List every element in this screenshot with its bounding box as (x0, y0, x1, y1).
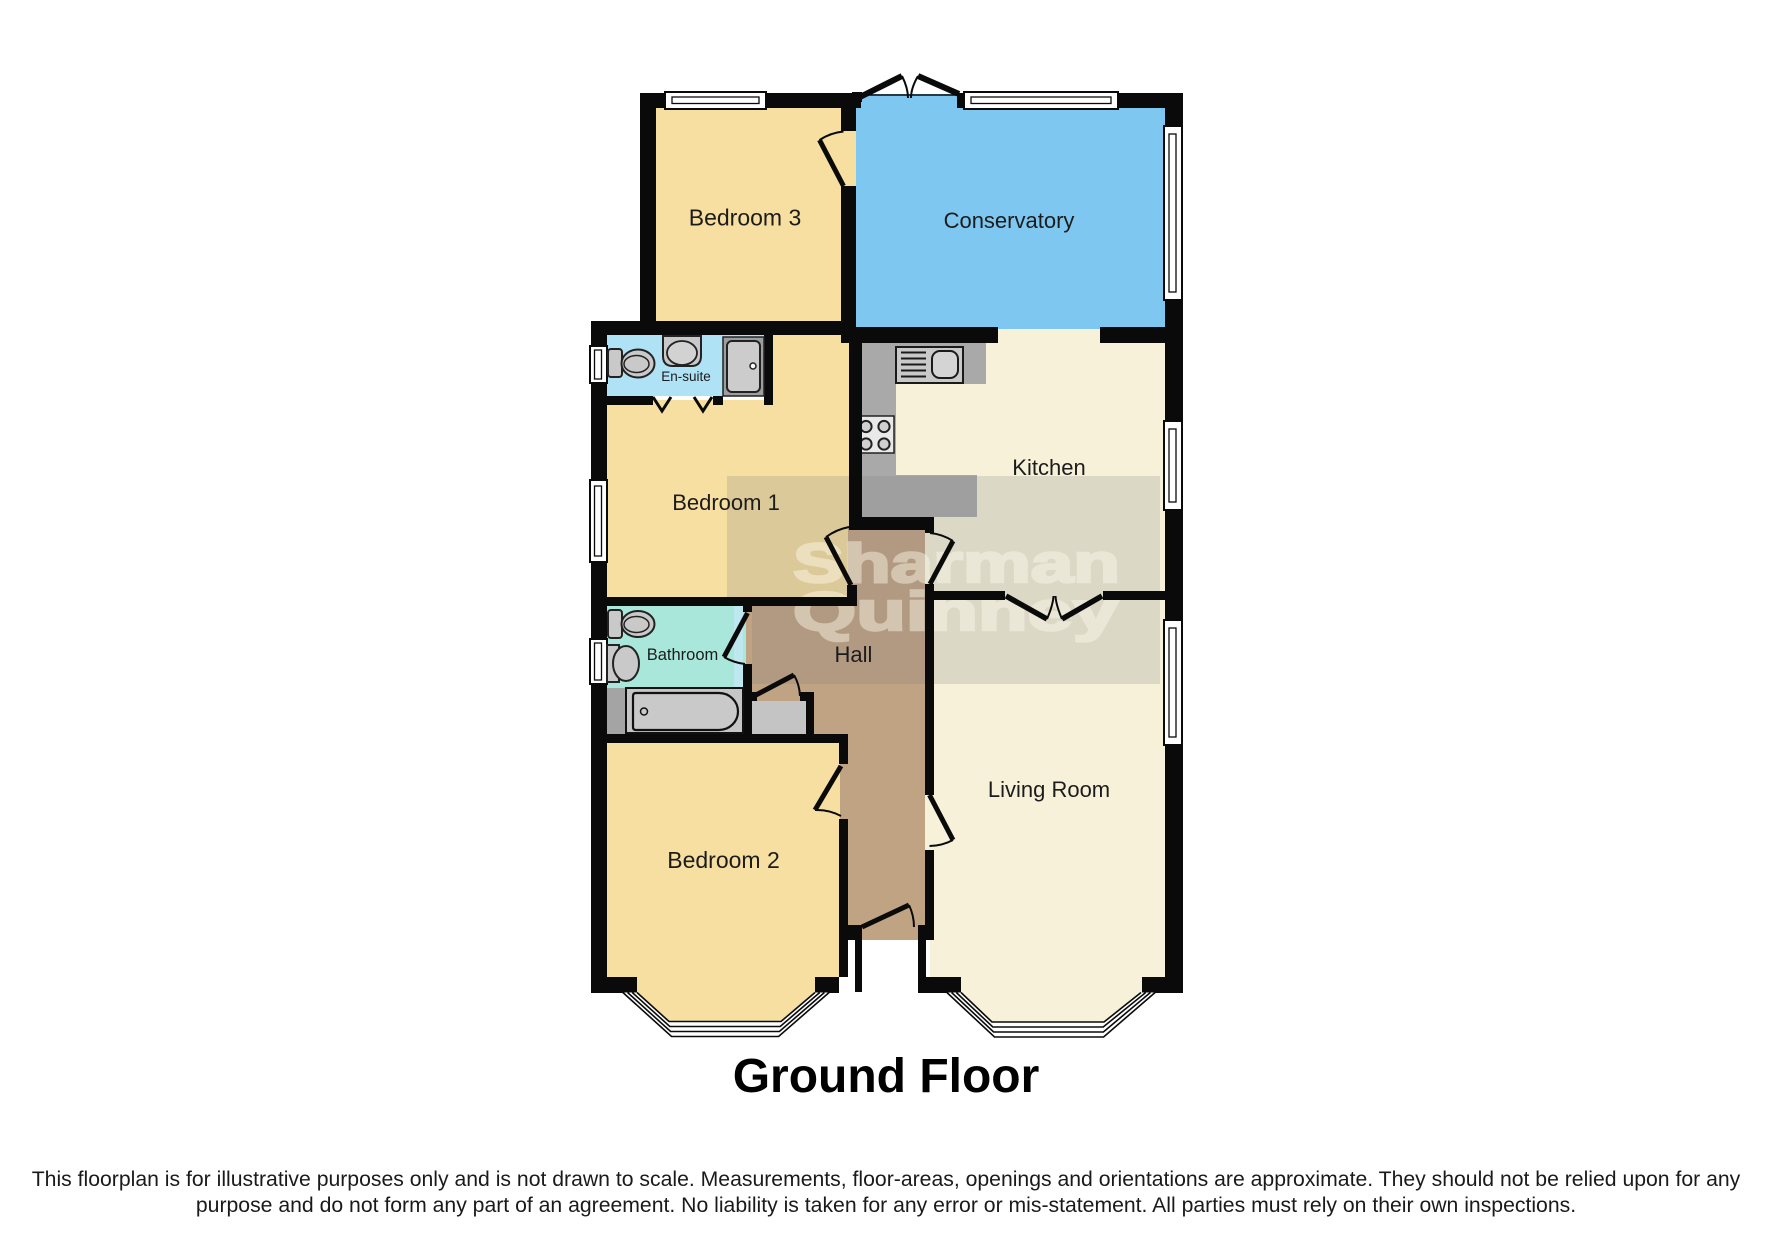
svg-text:Bedroom 1: Bedroom 1 (672, 490, 780, 515)
svg-text:En-suite: En-suite (661, 369, 711, 384)
svg-text:Bedroom 3: Bedroom 3 (689, 205, 802, 231)
svg-text:Quinney: Quinney (793, 580, 1119, 642)
svg-text:Bedroom 2: Bedroom 2 (667, 847, 780, 873)
svg-text:purpose and do not form any pa: purpose and do not form any part of an a… (196, 1194, 1576, 1217)
svg-text:Conservatory: Conservatory (944, 208, 1075, 233)
svg-text:Ground Floor: Ground Floor (733, 1050, 1040, 1103)
svg-text:Hall: Hall (835, 642, 873, 667)
svg-text:This floorplan is for illustra: This floorplan is for illustrative purpo… (32, 1168, 1741, 1191)
svg-text:Living Room: Living Room (988, 777, 1110, 802)
svg-text:Kitchen: Kitchen (1012, 455, 1085, 480)
svg-text:Bathroom: Bathroom (647, 646, 719, 664)
